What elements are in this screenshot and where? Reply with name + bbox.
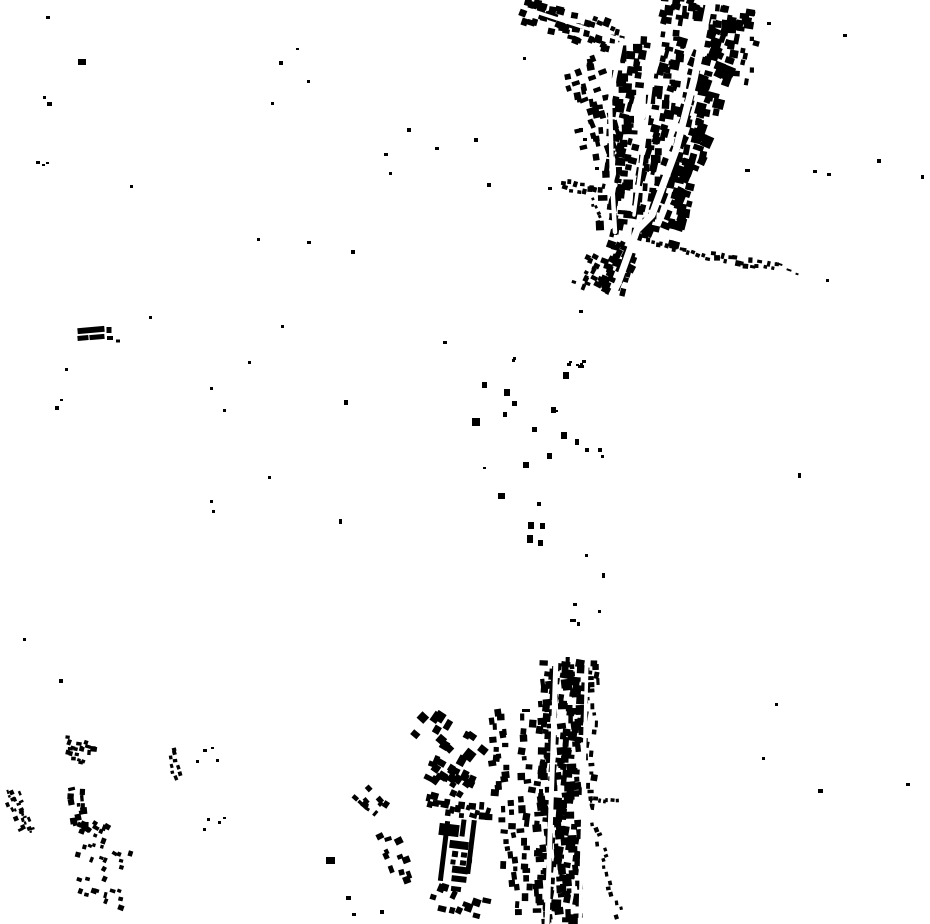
building (522, 868, 530, 873)
building (508, 800, 514, 806)
building (625, 164, 632, 171)
building (577, 665, 585, 674)
barracks-square-3 (116, 340, 120, 343)
building (598, 448, 602, 452)
building (509, 809, 514, 815)
building (588, 682, 594, 687)
building (754, 264, 758, 268)
isolated-building (877, 159, 881, 163)
building (575, 439, 579, 445)
building (564, 73, 571, 80)
building (538, 701, 543, 707)
building (169, 755, 173, 759)
building (743, 21, 754, 30)
building (520, 713, 524, 720)
isolated-building (389, 172, 392, 175)
isolated-building (579, 310, 583, 313)
isolated-building (818, 789, 823, 793)
isolated-building (296, 48, 299, 50)
building (590, 703, 594, 709)
isolated-building (207, 818, 210, 821)
building (523, 846, 529, 851)
building (588, 763, 594, 767)
isolated-building (813, 170, 817, 173)
isolated-building (583, 138, 587, 141)
building (554, 907, 564, 915)
building (634, 72, 641, 79)
isolated-building (443, 341, 447, 344)
building (598, 127, 603, 134)
building (682, 248, 686, 252)
isolated-building (210, 387, 213, 390)
building (491, 789, 500, 796)
isolated-building (196, 760, 199, 763)
building (567, 363, 571, 366)
isolated-building (257, 238, 260, 241)
building (605, 798, 607, 802)
building (499, 730, 506, 738)
isolated-building (307, 241, 311, 244)
building (562, 770, 572, 778)
building (573, 769, 580, 774)
building (540, 523, 545, 529)
building (751, 11, 756, 16)
barracks-square-1 (107, 327, 112, 333)
building (92, 746, 97, 751)
building (569, 189, 573, 193)
isolated-building (307, 80, 310, 83)
building (571, 824, 577, 830)
building (590, 774, 598, 782)
isolated-building (384, 153, 388, 156)
building (528, 522, 534, 529)
building (743, 263, 749, 268)
building (526, 764, 533, 770)
building (711, 251, 716, 255)
isolated-building (218, 821, 221, 824)
isolated-building (351, 250, 355, 254)
building (524, 819, 530, 827)
building (567, 799, 573, 805)
building (522, 853, 527, 859)
building (558, 854, 564, 858)
building (646, 237, 651, 242)
isolated-building (921, 175, 924, 179)
building (515, 901, 520, 908)
isolated-building (130, 185, 133, 188)
isolated-building (435, 147, 439, 150)
building (560, 763, 567, 770)
isolated-building (523, 57, 526, 60)
building (623, 210, 631, 218)
building (565, 909, 571, 918)
building (750, 37, 754, 41)
building (647, 193, 654, 202)
building (575, 745, 581, 753)
isolated-building (223, 409, 226, 412)
building (727, 40, 735, 50)
building (511, 872, 517, 880)
isolated-building (582, 360, 586, 363)
building (571, 12, 579, 19)
building (547, 724, 551, 729)
building (563, 372, 569, 379)
building (715, 4, 720, 11)
isolated-building (346, 896, 351, 900)
building (606, 886, 611, 890)
building (662, 100, 670, 109)
building (503, 839, 508, 844)
building (551, 407, 556, 413)
isolated-building (513, 357, 516, 360)
building (77, 803, 80, 807)
building (580, 363, 583, 365)
isolated-building (60, 399, 63, 401)
isolated-building (745, 169, 750, 172)
isolated-building (598, 610, 601, 613)
building (502, 743, 508, 747)
isolated-building (569, 361, 572, 363)
building (556, 410, 558, 412)
building (513, 866, 517, 871)
building (595, 721, 598, 728)
building (472, 418, 480, 426)
isolated-building (339, 519, 342, 524)
barracks-bar-2 (77, 335, 88, 341)
building (732, 255, 738, 260)
building (500, 861, 506, 869)
building (610, 798, 614, 802)
building (488, 760, 497, 767)
building (590, 798, 592, 802)
building (512, 857, 519, 864)
building (568, 919, 574, 924)
isolated-building (47, 102, 52, 106)
isolated-building (43, 96, 46, 99)
building (526, 883, 532, 890)
building (672, 30, 679, 37)
building (503, 412, 507, 417)
building (523, 875, 529, 881)
building (527, 535, 533, 543)
building (547, 453, 552, 459)
building (596, 678, 600, 685)
isolated-building (407, 128, 411, 132)
building (574, 777, 579, 782)
building (522, 756, 527, 761)
building (536, 856, 545, 862)
building (570, 664, 575, 669)
building (68, 798, 75, 805)
isolated-building (281, 325, 284, 328)
building (587, 790, 593, 793)
building (665, 17, 672, 24)
building (497, 714, 505, 721)
building (67, 793, 74, 799)
building (602, 170, 611, 177)
building (681, 11, 689, 19)
building (579, 727, 584, 735)
building (529, 720, 537, 728)
isolated-building (36, 161, 40, 164)
building (748, 257, 752, 263)
building (587, 688, 594, 692)
building (534, 811, 543, 816)
building (444, 799, 450, 805)
building (567, 179, 571, 184)
isolated-building (55, 406, 59, 410)
isolated-building (548, 187, 552, 190)
building (522, 893, 529, 901)
building (590, 822, 594, 826)
building (616, 799, 619, 803)
barracks-square-2 (107, 336, 113, 340)
building (586, 783, 590, 789)
isolated-building (573, 603, 577, 606)
building (644, 42, 651, 48)
building (468, 803, 476, 810)
building (65, 735, 70, 739)
isolated-building (570, 619, 576, 622)
building (459, 813, 464, 818)
building (505, 846, 511, 851)
building (595, 841, 599, 846)
map-canvas (0, 0, 930, 924)
building (740, 48, 746, 54)
building (514, 884, 520, 891)
building (501, 806, 505, 813)
building (537, 875, 546, 881)
building (626, 51, 635, 60)
isolated-building (223, 817, 226, 819)
building (504, 389, 510, 396)
isolated-building (577, 622, 580, 626)
building (577, 190, 581, 194)
building (729, 50, 739, 59)
building (517, 747, 525, 755)
building (653, 139, 659, 145)
building (544, 708, 548, 713)
isolated-building (595, 167, 599, 170)
isolated-building (487, 183, 491, 187)
isolated-building (326, 857, 335, 864)
building (586, 63, 594, 71)
building (523, 462, 529, 468)
isolated-building (826, 279, 829, 282)
isolated-building (602, 573, 605, 578)
building (593, 796, 598, 800)
building (498, 493, 505, 499)
isolated-building (798, 473, 801, 478)
building (508, 823, 516, 829)
building (173, 759, 178, 763)
isolated-building (65, 368, 68, 371)
isolated-building (474, 138, 478, 142)
building (538, 540, 543, 546)
building (592, 712, 596, 715)
building (598, 195, 608, 201)
building (503, 765, 509, 770)
building (643, 183, 648, 191)
building (660, 31, 665, 37)
building (512, 401, 517, 406)
building (619, 87, 627, 93)
building (602, 865, 605, 869)
building (537, 502, 541, 506)
isolated-building (78, 59, 86, 65)
building (532, 824, 541, 832)
compound-top-block (438, 823, 459, 837)
building (655, 148, 662, 155)
building (750, 67, 754, 72)
isolated-building (522, 709, 530, 712)
isolated-building (212, 510, 215, 513)
isolated-building (203, 749, 207, 752)
building (541, 684, 549, 693)
compound-inner-5 (468, 859, 472, 863)
building (635, 82, 644, 88)
isolated-building (843, 34, 847, 37)
building (540, 773, 548, 780)
compound-inner-1 (452, 851, 459, 858)
building (493, 723, 497, 730)
isolated-building (248, 361, 251, 364)
building (532, 427, 537, 432)
isolated-building (271, 102, 274, 105)
building (615, 158, 625, 166)
compound-inner-3 (450, 859, 456, 865)
building (489, 737, 497, 744)
building (561, 432, 567, 439)
building (520, 728, 526, 735)
isolated-building (59, 679, 63, 683)
isolated-building (827, 173, 831, 176)
building (589, 750, 594, 757)
building (80, 795, 84, 802)
building (485, 814, 492, 820)
isolated-building (775, 703, 778, 706)
building (714, 255, 720, 261)
building (483, 467, 486, 469)
building (536, 726, 544, 734)
building (651, 240, 655, 244)
building (601, 455, 604, 458)
building (534, 781, 541, 787)
building (482, 382, 487, 388)
building (569, 692, 577, 697)
isolated-building (46, 162, 49, 164)
isolated-building (42, 164, 45, 166)
building (517, 773, 525, 781)
building (518, 805, 526, 813)
building (657, 92, 663, 100)
building (558, 865, 566, 875)
building (558, 893, 565, 898)
building (615, 900, 619, 905)
building (542, 817, 548, 822)
building-footprint-map (0, 0, 930, 924)
building (592, 664, 599, 670)
building (479, 802, 484, 810)
isolated-building (579, 128, 583, 132)
building (76, 742, 82, 746)
building (520, 735, 528, 742)
isolated-building (352, 913, 356, 916)
building (557, 723, 566, 730)
isolated-building (762, 757, 765, 760)
isolated-building (149, 316, 152, 319)
building (458, 801, 465, 809)
building (518, 796, 524, 803)
building (659, 241, 663, 245)
building (500, 829, 508, 834)
building (585, 448, 589, 452)
isolated-building (46, 16, 50, 19)
isolated-building (578, 365, 584, 368)
building (521, 838, 527, 846)
building (663, 73, 671, 79)
building (620, 170, 628, 177)
building (592, 729, 597, 734)
compound-inner-4 (460, 860, 467, 866)
isolated-building (344, 400, 348, 405)
building (580, 183, 585, 187)
building (592, 153, 599, 160)
isolated-building (210, 500, 213, 503)
isolated-building (211, 747, 214, 749)
building (533, 908, 541, 913)
isolated-building (203, 828, 206, 831)
building (670, 244, 675, 248)
building (516, 828, 524, 833)
isolated-building (380, 910, 384, 914)
building (515, 909, 522, 915)
isolated-building (23, 638, 26, 641)
building (585, 554, 588, 557)
building (80, 789, 85, 795)
isolated-building (906, 783, 910, 786)
building (539, 660, 548, 666)
isolated-building (279, 61, 283, 65)
isolated-building (268, 476, 271, 479)
isolated-building (767, 22, 771, 25)
isolated-building (216, 759, 219, 762)
building (498, 817, 505, 822)
building (494, 747, 499, 752)
compound-inner-2 (461, 852, 468, 858)
building (552, 801, 561, 809)
building (71, 757, 76, 761)
building (628, 130, 637, 135)
building (528, 786, 536, 793)
